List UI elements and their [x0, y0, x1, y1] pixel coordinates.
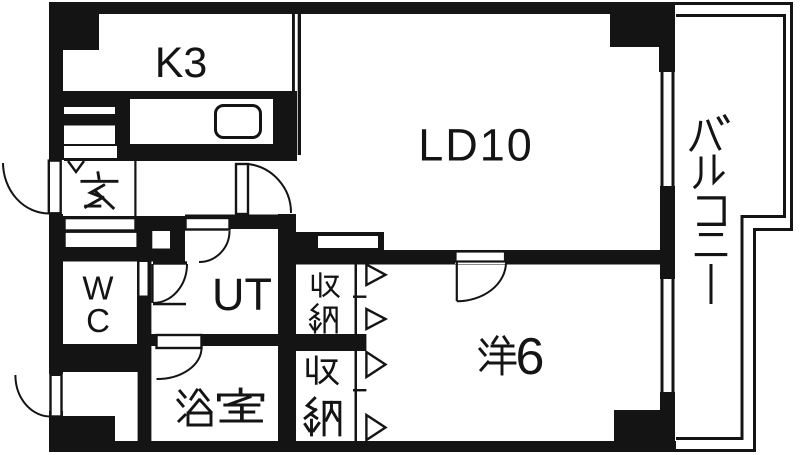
svg-text:C: C: [86, 302, 110, 339]
svg-text:W: W: [82, 270, 114, 307]
svg-text:K3: K3: [155, 39, 208, 87]
svg-text:UT: UT: [212, 269, 272, 320]
svg-text:LD10: LD10: [418, 120, 534, 171]
svg-text:6: 6: [516, 328, 545, 386]
